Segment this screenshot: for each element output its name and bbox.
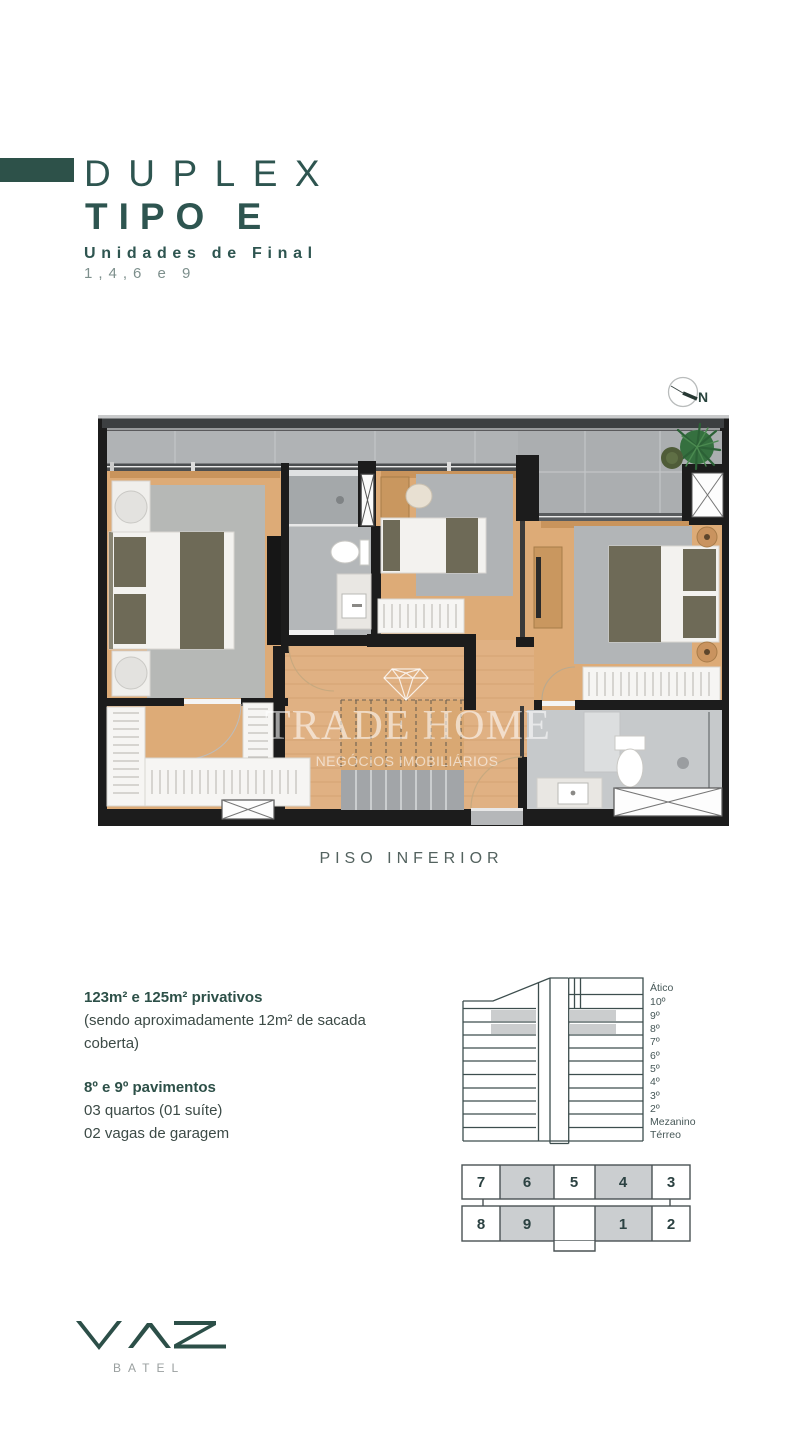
svg-text:4º: 4º (650, 1076, 660, 1088)
svg-text:7: 7 (477, 1174, 485, 1191)
svg-text:Ático: Ático (650, 981, 674, 994)
svg-text:4: 4 (619, 1174, 628, 1191)
svg-text:3: 3 (667, 1174, 675, 1191)
svg-text:10º: 10º (650, 996, 666, 1008)
svg-text:5º: 5º (650, 1063, 660, 1075)
svg-text:Térreo: Térreo (650, 1129, 681, 1141)
svg-text:7º: 7º (650, 1036, 660, 1048)
svg-text:9: 9 (523, 1216, 531, 1233)
svg-text:6º: 6º (650, 1050, 660, 1062)
svg-text:2º: 2º (650, 1103, 660, 1115)
svg-text:BATEL: BATEL (113, 1361, 185, 1375)
svg-text:6: 6 (523, 1174, 531, 1191)
svg-text:5: 5 (570, 1174, 578, 1191)
svg-text:1: 1 (619, 1216, 627, 1233)
svg-text:8: 8 (477, 1216, 485, 1233)
svg-text:3º: 3º (650, 1090, 660, 1102)
svg-text:2: 2 (667, 1216, 675, 1233)
svg-text:Mezanino: Mezanino (650, 1116, 696, 1128)
svg-text:9º: 9º (650, 1010, 660, 1022)
svg-text:8º: 8º (650, 1023, 660, 1035)
